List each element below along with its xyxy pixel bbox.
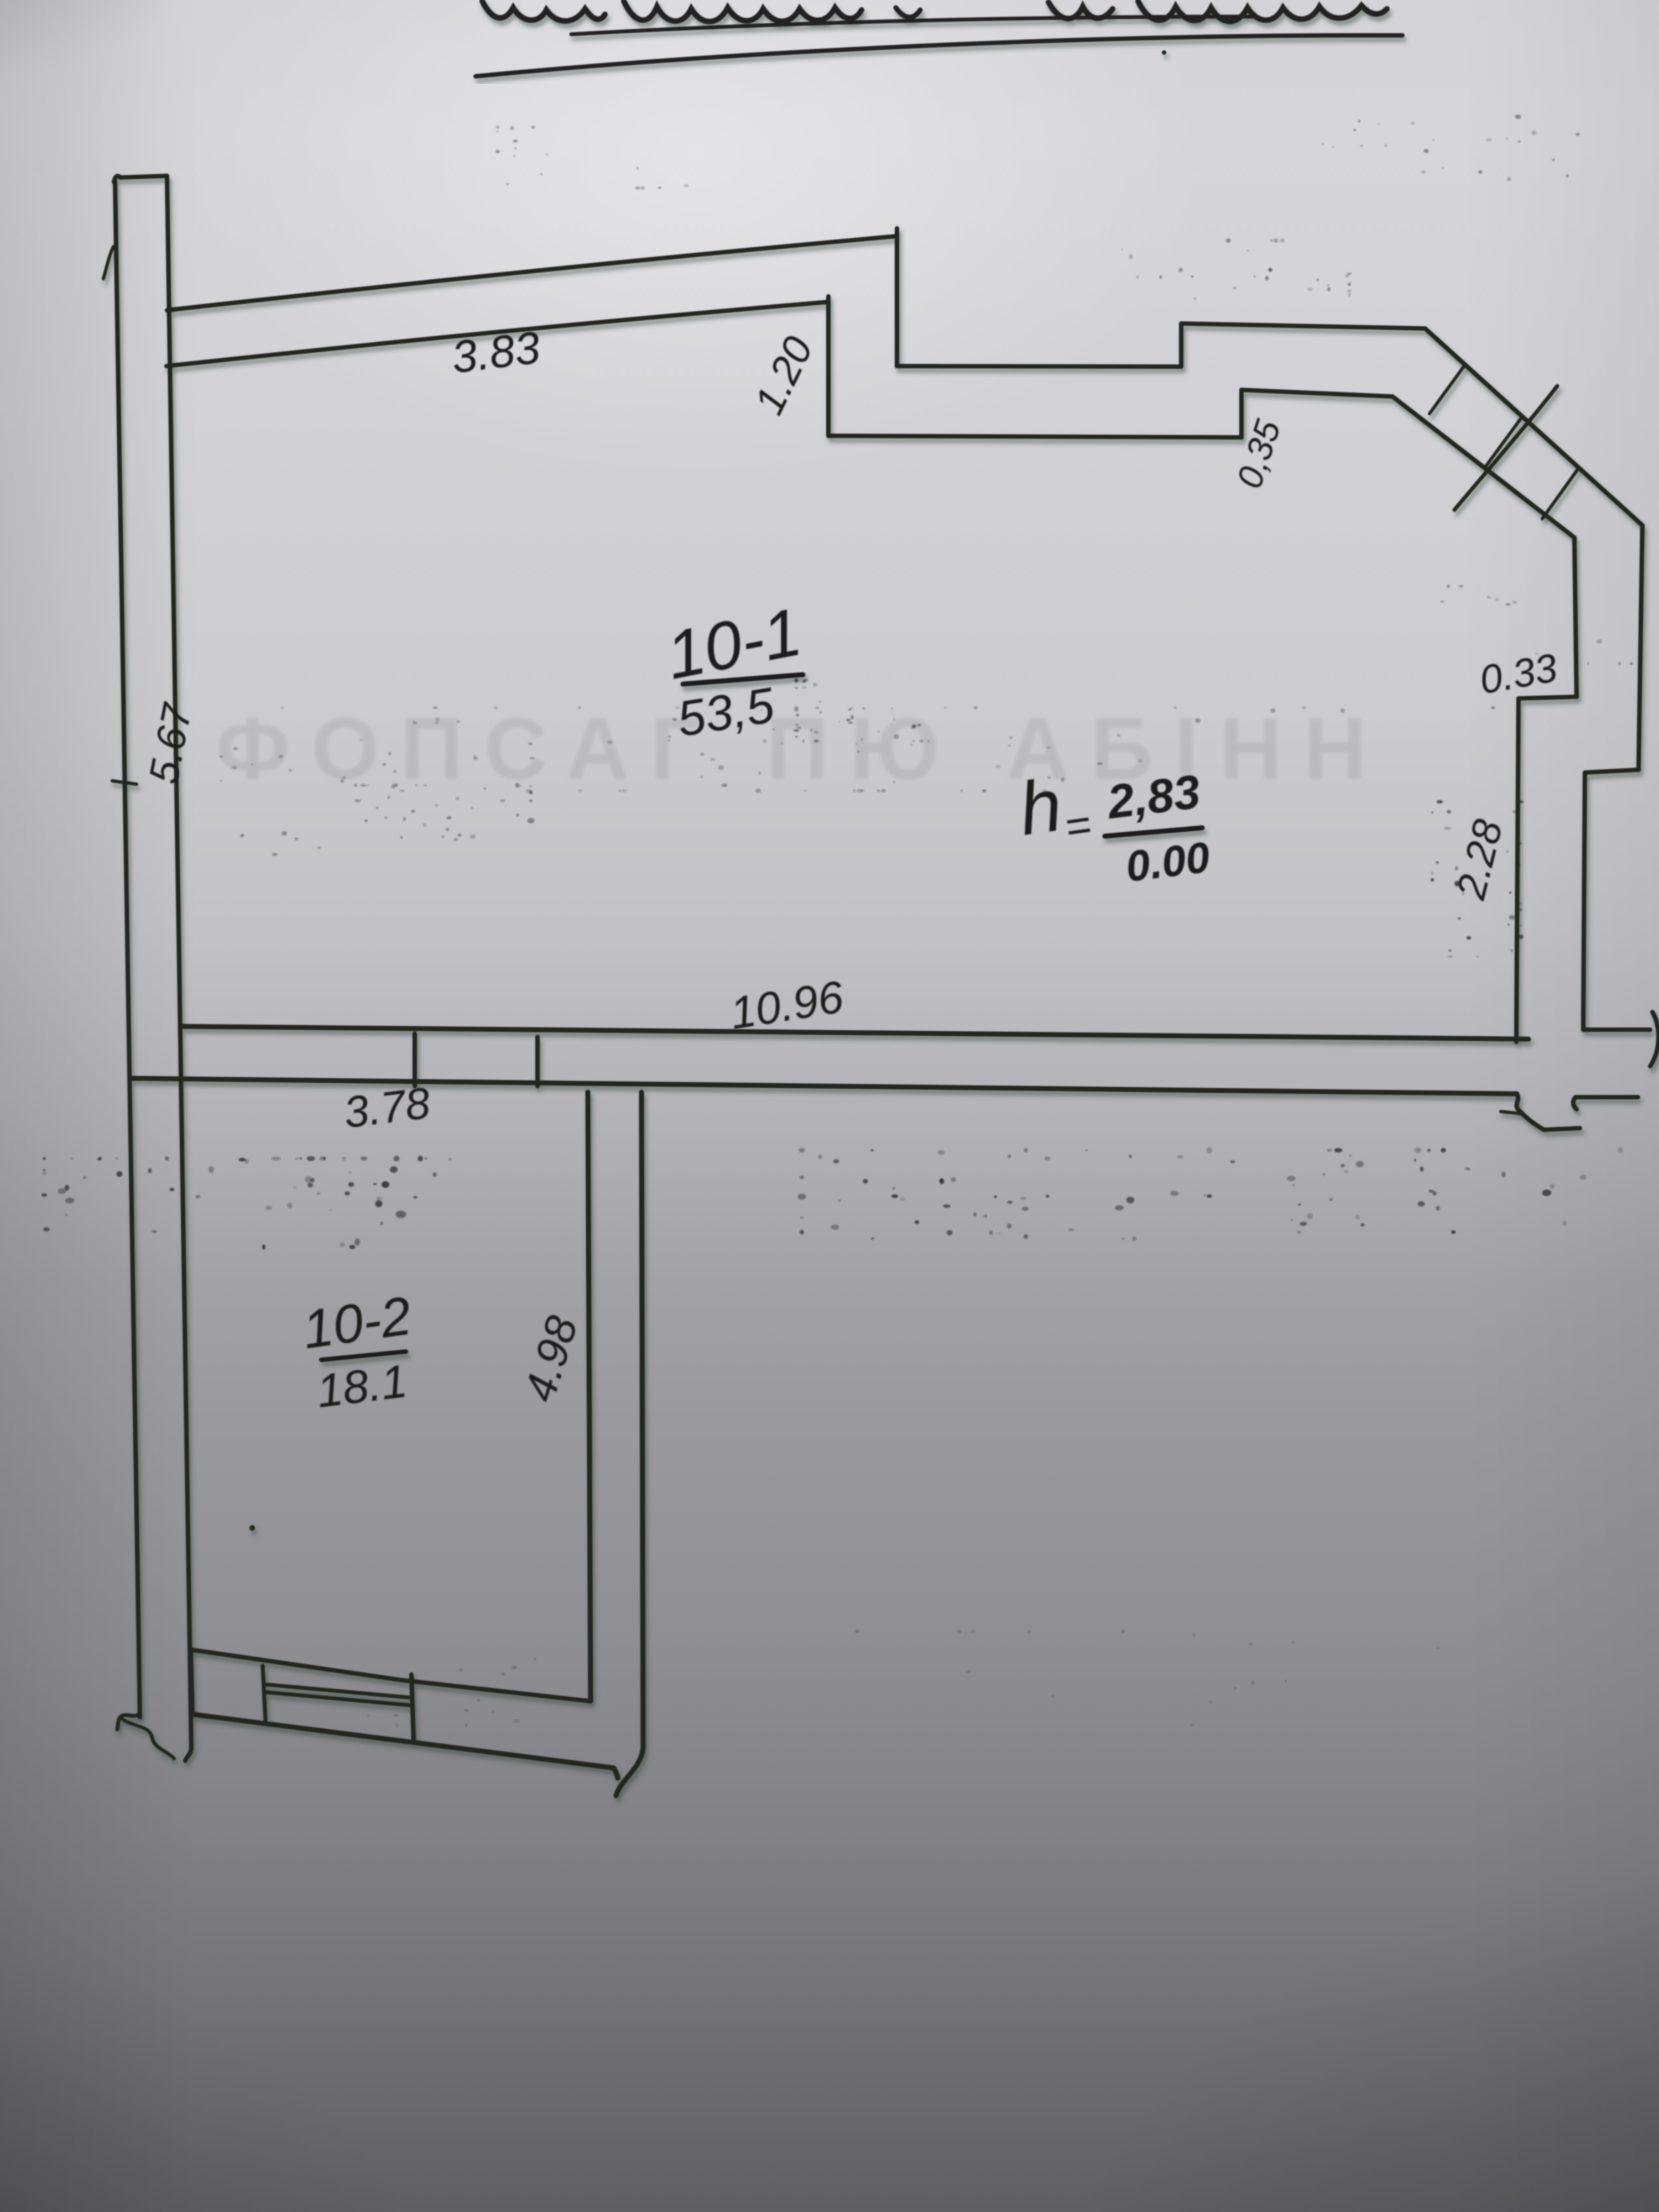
svg-text:4.98: 4.98 bbox=[514, 1310, 587, 1407]
svg-text:2,83: 2,83 bbox=[1104, 765, 1203, 829]
svg-text:18.1: 18.1 bbox=[314, 1355, 410, 1417]
svg-text:ФОПСАГ ПЮ АБІНН: ФОПСАГ ПЮ АБІНН bbox=[216, 700, 1387, 797]
svg-text:2.28: 2.28 bbox=[1447, 815, 1511, 904]
svg-text:0.00: 0.00 bbox=[1123, 832, 1212, 891]
svg-text:5.67: 5.67 bbox=[140, 699, 200, 787]
svg-text:0.33: 0.33 bbox=[1477, 646, 1561, 703]
svg-text:10.96: 10.96 bbox=[727, 972, 847, 1039]
svg-text:1.20: 1.20 bbox=[745, 330, 822, 421]
svg-text:0,35: 0,35 bbox=[1229, 415, 1288, 493]
svg-text:10-2: 10-2 bbox=[299, 1285, 415, 1360]
svg-text:3.83: 3.83 bbox=[449, 322, 543, 383]
svg-text:3.78: 3.78 bbox=[341, 1078, 433, 1137]
